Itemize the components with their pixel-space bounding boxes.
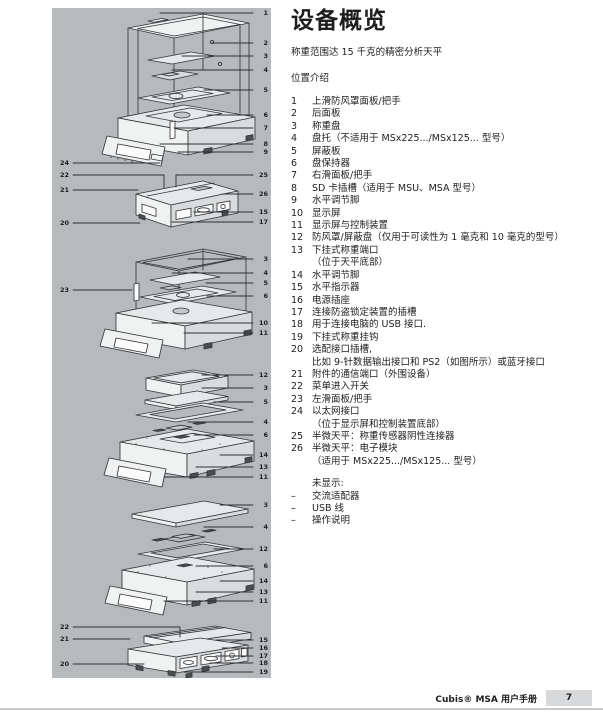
- callout-label: 21: [57, 186, 69, 194]
- parts-list-row: 12防风罩/屏蔽盘（仅用于可读性为 1 毫克和 10 毫克的型号）: [291, 232, 597, 244]
- part-number: 11: [291, 220, 312, 232]
- part-number: 2: [291, 108, 312, 120]
- parts-list-row: 17连接防盗锁定装置的插槽: [291, 307, 597, 319]
- parts-list-row: （位于显示屏和控制装置底部）: [291, 419, 597, 431]
- callout-label: 13: [253, 588, 268, 596]
- part-label: 以太网接口: [312, 406, 360, 418]
- part-label: 菜单进入开关: [312, 381, 369, 393]
- parts-list-row: –USB 线: [291, 503, 597, 515]
- part-number: 9: [291, 195, 312, 207]
- callout-label: 11: [253, 597, 268, 605]
- callout-label: 22: [57, 171, 69, 179]
- callout-label: 21: [57, 635, 69, 643]
- page-number: 7: [566, 693, 572, 703]
- callout-label: 26: [253, 190, 268, 198]
- parts-list-row: 10显示屏: [291, 208, 597, 220]
- part-number: 19: [291, 332, 312, 344]
- callout-label: 14: [253, 577, 268, 585]
- page-footer: Cubis® MSA 用户手册 7: [0, 690, 603, 708]
- footer-rule: [0, 708, 603, 710]
- callout-label: 15: [253, 636, 268, 644]
- callout-label: 23: [57, 286, 69, 294]
- callout-label: 4: [253, 66, 268, 74]
- parts-list-row: 1上滑防风罩面板/把手: [291, 96, 597, 108]
- callout-label: 22: [57, 623, 69, 631]
- parts-list-row: 25半微天平：称重传感器阴性连接器: [291, 431, 597, 443]
- balance-illustrations: [52, 8, 271, 678]
- callout-label: 3: [253, 255, 268, 263]
- part-number: [291, 456, 312, 468]
- part-label: 半微天平：称重传感器阴性连接器: [312, 431, 455, 443]
- part-label: 屏蔽板: [312, 146, 341, 158]
- part-label: 称重盘: [312, 121, 341, 133]
- content-column: 设备概览 称重范围达 15 千克的精密分析天平 位置介绍 1上滑防风罩面板/把手…: [291, 8, 597, 528]
- parts-list: 1上滑防风罩面板/把手2后面板3称重盘4盘托（不适用于 MSx225.../MS…: [291, 96, 597, 468]
- part-label: 电源插座: [312, 295, 350, 307]
- callout-label: 12: [253, 545, 268, 553]
- part-number: 24: [291, 406, 312, 418]
- callout-label: 13: [253, 463, 268, 471]
- page-subtitle: 称重范围达 15 千克的精密分析天平: [291, 47, 597, 59]
- part-number: 3: [291, 121, 312, 133]
- parts-list-row: 21附件的通信端口（外围设备）: [291, 369, 597, 381]
- part-number: 21: [291, 369, 312, 381]
- parts-list-row: 2后面板: [291, 108, 597, 120]
- parts-list-row: –交流适配器: [291, 491, 597, 503]
- part-label: 水平指示器: [312, 282, 360, 294]
- callout-label: 20: [57, 219, 69, 227]
- parts-list-row: 9水平调节脚: [291, 195, 597, 207]
- part-label: 连接防盗锁定装置的插槽: [312, 307, 417, 319]
- part-number: 22: [291, 381, 312, 393]
- part-label: （位于显示屏和控制装置底部）: [312, 419, 445, 431]
- part-label: 下挂式称重端口: [312, 245, 379, 257]
- part-number: 1: [291, 96, 312, 108]
- parts-list-row: 6盘保持器: [291, 158, 597, 170]
- part-label: 选配接口插槽,: [312, 344, 372, 356]
- callout-label: 6: [253, 111, 268, 119]
- page-title: 设备概览: [291, 8, 597, 35]
- callout-label: 15: [253, 208, 268, 216]
- callout-label: 17: [253, 218, 268, 226]
- part-label: （位于天平底部）: [312, 257, 388, 269]
- part-number: 20: [291, 344, 312, 356]
- callout-label: 5: [253, 86, 268, 94]
- callout-label: 3: [253, 384, 268, 392]
- parts-list-row: 13下挂式称重端口: [291, 245, 597, 257]
- part-number: 13: [291, 245, 312, 257]
- callout-label: 11: [253, 473, 268, 481]
- illustration-rear-view: [128, 626, 251, 678]
- callout-label: 5: [253, 398, 268, 406]
- parts-list-row: 16电源插座: [291, 295, 597, 307]
- part-number: 15: [291, 282, 312, 294]
- part-label: 比如 9-针数据输出接口和 PS2（如图所示）或蓝牙接口: [312, 357, 545, 369]
- callout-label: 11: [253, 329, 268, 337]
- part-label: 后面板: [312, 108, 341, 120]
- callout-label: 4: [253, 523, 268, 531]
- callout-label: 6: [253, 431, 268, 439]
- callout-label: 4: [253, 269, 268, 277]
- parts-list-row: 24以太网接口: [291, 406, 597, 418]
- callout-label: 2: [253, 39, 268, 47]
- part-number: 6: [291, 158, 312, 170]
- part-label: 显示屏: [312, 208, 341, 220]
- parts-list-row: 3称重盘: [291, 121, 597, 133]
- part-number: –: [291, 503, 312, 515]
- callout-label: 16: [253, 644, 268, 652]
- callout-label: 10: [253, 319, 268, 327]
- not-shown-list: 未显示:–交流适配器–USB 线–操作说明: [291, 478, 597, 528]
- parts-list-row: 18用于连接电脑的 USB 接口.: [291, 319, 597, 331]
- callout-label: 5: [253, 279, 268, 287]
- part-number: –: [291, 515, 312, 527]
- part-label: 附件的通信端口（外围设备）: [312, 369, 436, 381]
- parts-list-row: 8SD 卡插槽（适用于 MSU、MSA 型号）: [291, 183, 597, 195]
- parts-list-row: 5屏蔽板: [291, 146, 597, 158]
- parts-list-row: 4盘托（不适用于 MSx225.../MSx125... 型号）: [291, 133, 597, 145]
- part-number: 14: [291, 270, 312, 282]
- illustration-exploded-view-2: [105, 501, 254, 615]
- part-number: 4: [291, 133, 312, 145]
- part-label: 防风罩/屏蔽盘（仅用于可读性为 1 毫克和 10 毫克的型号）: [312, 232, 564, 244]
- parts-list-row: 26半微天平：电子模块: [291, 443, 597, 455]
- part-label: USB 线: [312, 503, 344, 515]
- illustration-electronics-module: [136, 181, 238, 227]
- parts-list-row: （位于天平底部）: [291, 257, 597, 269]
- parts-list-row: 20选配接口插槽,: [291, 344, 597, 356]
- callout-label: 1: [253, 9, 268, 17]
- part-label: 盘保持器: [312, 158, 350, 170]
- part-label: 右滑面板/把手: [312, 170, 372, 182]
- callout-label: 4: [253, 418, 268, 426]
- parts-list-row: 比如 9-针数据输出接口和 PS2（如图所示）或蓝牙接口: [291, 357, 597, 369]
- part-label: 交流适配器: [312, 491, 360, 503]
- parts-list-row: 15水平指示器: [291, 282, 597, 294]
- part-number: [291, 478, 312, 490]
- part-number: [291, 419, 312, 431]
- parts-list-row: 22菜单进入开关: [291, 381, 597, 393]
- part-label: 半微天平：电子模块: [312, 443, 398, 455]
- callout-label: 9: [253, 148, 268, 156]
- part-label: （适用于 MSx225.../MSx125... 型号）: [312, 456, 482, 468]
- part-label: 未显示:: [312, 478, 344, 490]
- parts-list-row: 未显示:: [291, 478, 597, 490]
- part-number: 8: [291, 183, 312, 195]
- callout-label: 20: [57, 660, 69, 668]
- diagram-panel: 1234567892422252126152017345236101112354…: [52, 8, 271, 678]
- callout-label: 6: [253, 292, 268, 300]
- part-number: [291, 357, 312, 369]
- part-number: 16: [291, 295, 312, 307]
- part-number: –: [291, 491, 312, 503]
- part-label: 用于连接电脑的 USB 接口.: [312, 319, 426, 331]
- callout-label: 25: [253, 171, 268, 179]
- part-label: 水平调节脚: [312, 270, 360, 282]
- parts-list-row: 19下挂式称重挂钩: [291, 332, 597, 344]
- part-number: 26: [291, 443, 312, 455]
- section-heading: 位置介绍: [291, 73, 597, 85]
- parts-list-row: 23左滑面板/把手: [291, 394, 597, 406]
- callout-label: 7: [253, 124, 268, 132]
- callout-label: 8: [253, 140, 268, 148]
- callout-label: 24: [57, 159, 69, 167]
- callout-label: 6: [253, 562, 268, 570]
- part-label: SD 卡插槽（适用于 MSU、MSA 型号）: [312, 183, 481, 195]
- part-number: 18: [291, 319, 312, 331]
- callout-label: 18: [253, 659, 268, 667]
- part-label: 水平调节脚: [312, 195, 360, 207]
- parts-list-row: 14水平调节脚: [291, 270, 597, 282]
- part-label: 操作说明: [312, 515, 350, 527]
- manual-title: Cubis® MSA 用户手册: [435, 692, 537, 705]
- part-label: 下挂式称重挂钩: [312, 332, 379, 344]
- callout-label: 19: [253, 668, 268, 676]
- callout-label: 12: [253, 371, 268, 379]
- part-number: 17: [291, 307, 312, 319]
- callout-label: 14: [253, 451, 268, 459]
- part-number: 10: [291, 208, 312, 220]
- callout-label: 3: [253, 501, 268, 509]
- parts-list-row: 11显示屏与控制装置: [291, 220, 597, 232]
- part-label: 左滑面板/把手: [312, 394, 372, 406]
- part-number: 23: [291, 394, 312, 406]
- part-number: [291, 257, 312, 269]
- part-number: 5: [291, 146, 312, 158]
- part-number: 25: [291, 431, 312, 443]
- part-label: 盘托（不适用于 MSx225.../MSx125... 型号）: [312, 133, 510, 145]
- part-number: 7: [291, 170, 312, 182]
- part-number: 12: [291, 232, 312, 244]
- parts-list-row: 7右滑面板/把手: [291, 170, 597, 182]
- parts-list-row: –操作说明: [291, 515, 597, 527]
- illustration-frame-balance: [100, 249, 252, 358]
- parts-list-row: （适用于 MSx225.../MSx125... 型号）: [291, 456, 597, 468]
- part-label: 显示屏与控制装置: [312, 220, 388, 232]
- page-number-badge: 7: [546, 690, 592, 706]
- part-label: 上滑防风罩面板/把手: [312, 96, 401, 108]
- callout-label: 3: [253, 52, 268, 60]
